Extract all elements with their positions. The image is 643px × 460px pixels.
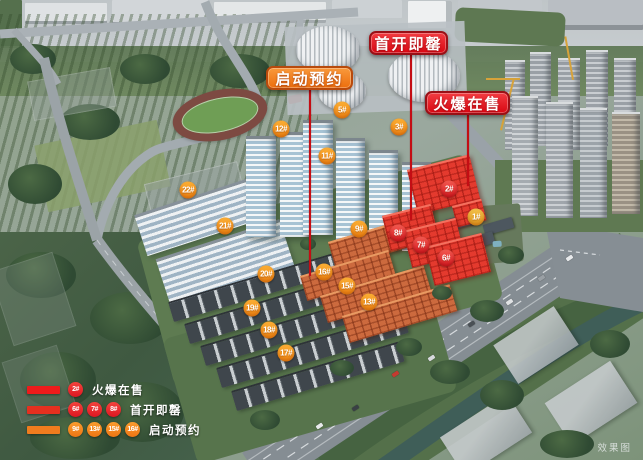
legend-color-bar (27, 386, 60, 394)
building-badge-12: 12# (273, 121, 290, 138)
legend-label: 启动预约 (149, 422, 201, 438)
legend-color-bar (27, 426, 60, 434)
building-badge-5: 5# (334, 102, 351, 119)
aerial-rendering: 首开即罄 启动预约 火爆在售 2# 火爆在售 6#7#8# 首开即罄 9#13#… (0, 0, 643, 460)
legend-badge-16: 16# (125, 422, 140, 437)
legend: 2# 火爆在售 6#7#8# 首开即罄 9#13#15#16# 启动预约 (27, 382, 201, 437)
building-badge-7: 7# (413, 237, 430, 254)
legend-badge-8: 8# (106, 402, 121, 417)
callout-hot-on-sale: 火爆在售 (425, 91, 510, 115)
legend-label: 火爆在售 (92, 382, 144, 398)
legend-row-sold-out: 6#7#8# 首开即罄 (27, 402, 201, 417)
building-badge-20: 20# (258, 266, 275, 283)
building-badge-11: 11# (319, 148, 336, 165)
building-badge-2: 2# (441, 181, 458, 198)
leader-line (309, 90, 311, 276)
legend-color-bar (27, 406, 60, 414)
annotation-layer: 首开即罄 启动预约 火爆在售 2# 火爆在售 6#7#8# 首开即罄 9#13#… (0, 0, 643, 460)
building-badge-6: 6# (438, 250, 455, 267)
building-badge-13: 13# (361, 294, 378, 311)
building-badge-8: 8# (390, 225, 407, 242)
legend-badge-13: 13# (87, 422, 102, 437)
building-badge-1: 1# (468, 209, 485, 226)
legend-row-reservation: 9#13#15#16# 启动预约 (27, 422, 201, 437)
building-badge-3: 3# (391, 119, 408, 136)
watermark: 效果图 (597, 440, 632, 454)
building-badge-15: 15# (339, 278, 356, 295)
leader-line (410, 55, 412, 220)
legend-badge-15: 15# (106, 422, 121, 437)
legend-label: 首开即罄 (130, 402, 182, 418)
callout-first-launch-sold-out: 首开即罄 (369, 31, 448, 55)
building-badge-21: 21# (217, 218, 234, 235)
legend-badge-6: 6# (68, 402, 83, 417)
building-badge-18: 18# (261, 322, 278, 339)
callout-start-reservation: 启动预约 (266, 66, 353, 90)
building-badge-22: 22# (180, 182, 197, 199)
building-badge-9: 9# (351, 221, 368, 238)
leader-line (467, 115, 469, 186)
legend-badge-9: 9# (68, 422, 83, 437)
legend-badge-7: 7# (87, 402, 102, 417)
legend-badge-2: 2# (68, 382, 83, 397)
building-badge-16: 16# (316, 264, 333, 281)
building-badge-17: 17# (278, 345, 295, 362)
legend-row-on-sale: 2# 火爆在售 (27, 382, 201, 397)
building-badge-19: 19# (244, 300, 261, 317)
